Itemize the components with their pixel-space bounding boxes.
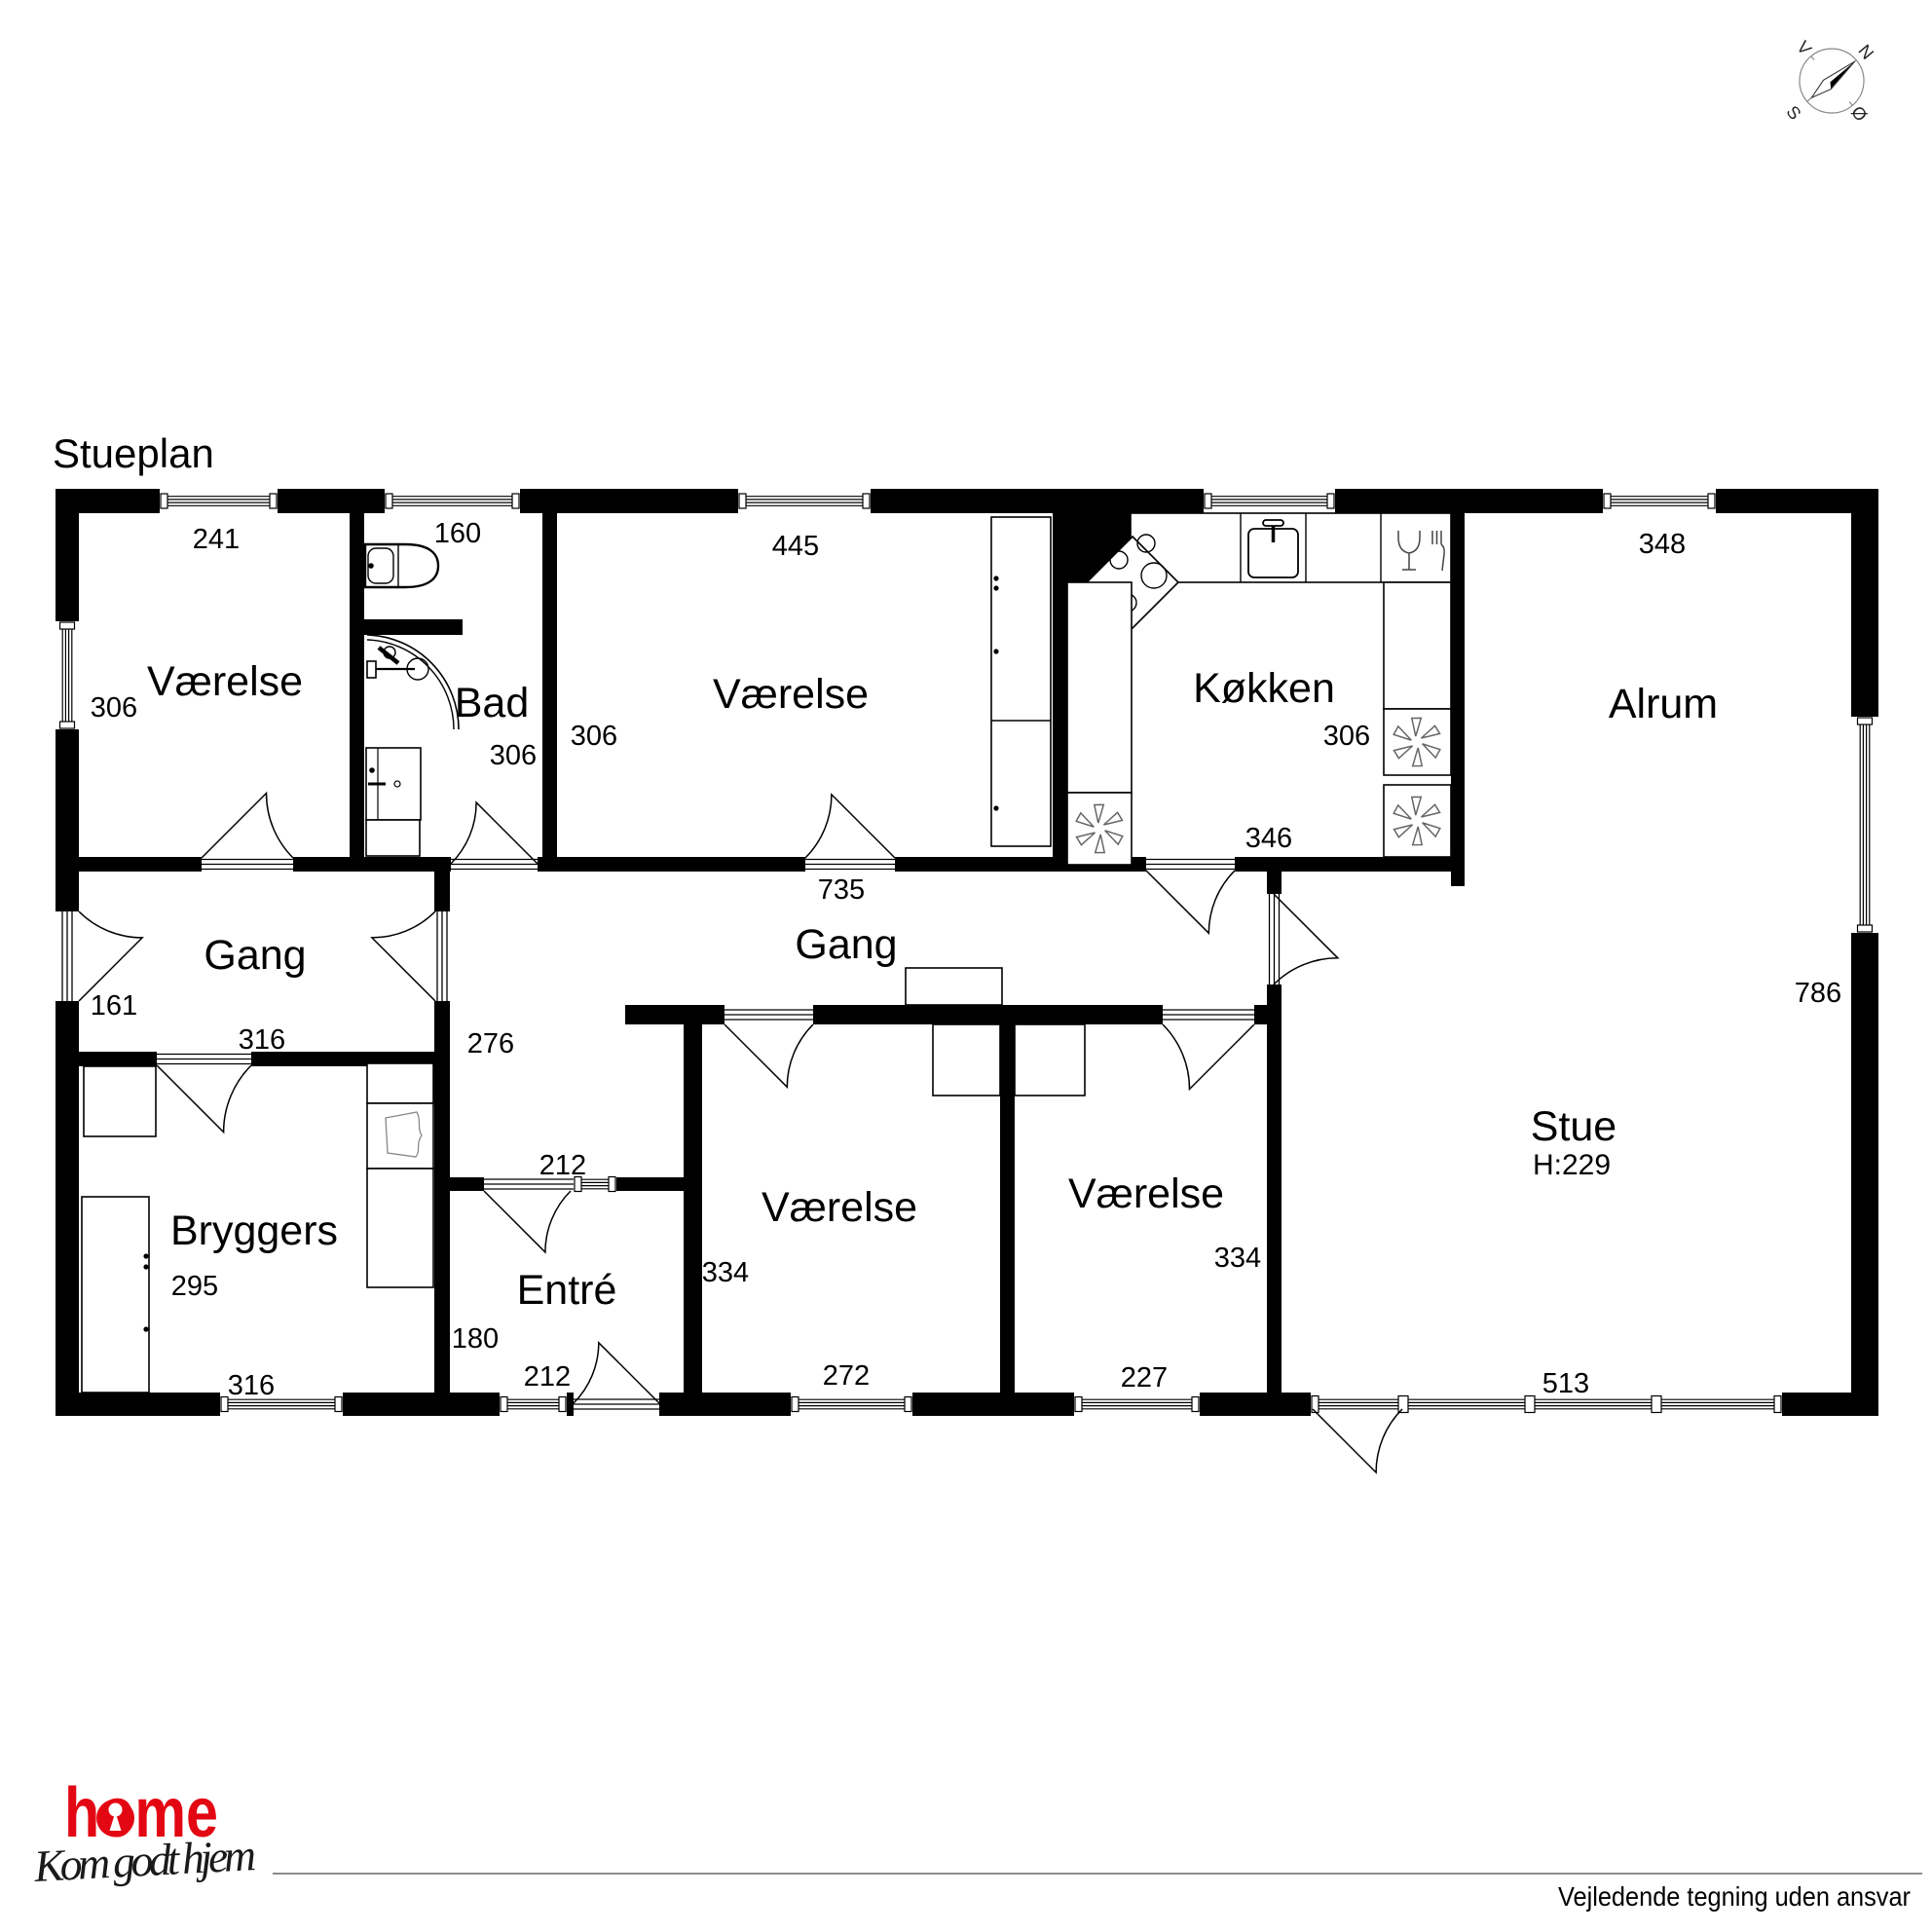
svg-text:241: 241 [193, 524, 240, 555]
svg-text:786: 786 [1795, 978, 1841, 1009]
svg-text:306: 306 [1323, 721, 1370, 752]
svg-text:Værelse: Værelse [1068, 1170, 1224, 1217]
svg-text:H:229: H:229 [1533, 1149, 1611, 1181]
svg-text:513: 513 [1542, 1368, 1589, 1399]
svg-text:735: 735 [818, 874, 865, 906]
svg-text:Gang: Gang [795, 921, 897, 968]
svg-text:306: 306 [91, 692, 137, 724]
svg-text:445: 445 [772, 531, 819, 562]
svg-text:316: 316 [239, 1024, 285, 1056]
svg-text:Vejledende tegning uden ansvar: Vejledende tegning uden ansvar [1558, 1881, 1911, 1912]
svg-text:348: 348 [1639, 529, 1686, 560]
svg-text:295: 295 [171, 1271, 218, 1302]
svg-text:160: 160 [434, 518, 481, 549]
svg-text:306: 306 [571, 721, 617, 752]
svg-text:316: 316 [228, 1370, 275, 1401]
svg-text:161: 161 [91, 990, 137, 1022]
svg-text:Entré: Entré [517, 1267, 617, 1314]
svg-text:Værelse: Værelse [147, 658, 303, 705]
svg-text:Værelse: Værelse [713, 671, 869, 718]
svg-text:212: 212 [539, 1150, 586, 1181]
svg-text:306: 306 [490, 740, 537, 771]
svg-text:Værelse: Værelse [762, 1184, 917, 1231]
svg-text:272: 272 [823, 1360, 870, 1392]
svg-text:Bryggers: Bryggers [170, 1207, 338, 1254]
svg-text:276: 276 [467, 1028, 514, 1059]
svg-text:346: 346 [1245, 823, 1292, 854]
svg-text:212: 212 [524, 1361, 571, 1393]
svg-text:Bad: Bad [455, 680, 530, 726]
svg-text:Alrum: Alrum [1609, 681, 1718, 727]
svg-text:227: 227 [1121, 1362, 1168, 1393]
svg-text:180: 180 [452, 1323, 499, 1355]
svg-text:334: 334 [1214, 1243, 1261, 1274]
svg-text:Køkken: Køkken [1193, 665, 1335, 712]
svg-text:334: 334 [702, 1257, 749, 1288]
svg-text:Stueplan: Stueplan [53, 430, 214, 476]
svg-text:Stue: Stue [1531, 1103, 1616, 1150]
svg-text:Gang: Gang [204, 932, 306, 979]
